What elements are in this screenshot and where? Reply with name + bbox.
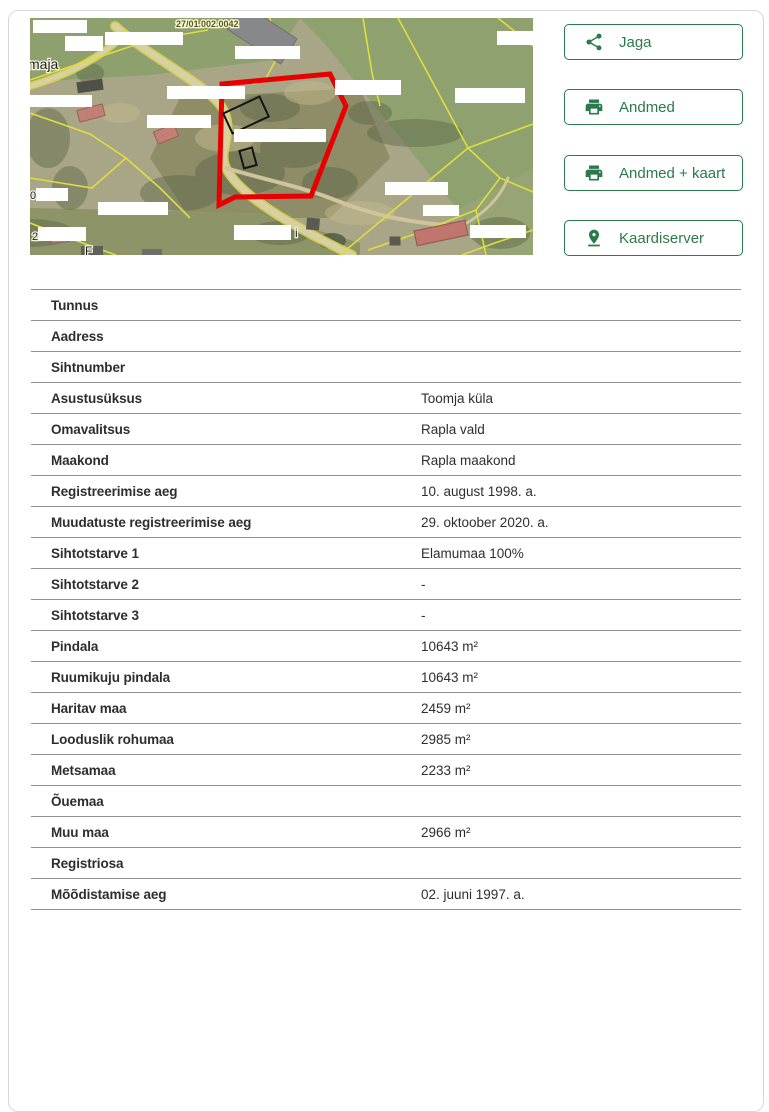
row-value: 10643 m² bbox=[421, 639, 478, 654]
table-row: Haritav maa2459 m² bbox=[31, 692, 741, 723]
row-label: Õuemaa bbox=[51, 794, 421, 809]
table-row: Õuemaa bbox=[31, 785, 741, 816]
row-label: Asustusüksus bbox=[51, 391, 421, 406]
map-glyph-2: 2 bbox=[32, 231, 38, 243]
print-data-button-label: Andmed bbox=[619, 99, 675, 116]
row-label: Pindala bbox=[51, 639, 421, 654]
table-row: Sihtotstarve 3- bbox=[31, 599, 741, 630]
row-label: Maakond bbox=[51, 453, 421, 468]
printer-icon bbox=[584, 163, 604, 183]
map-server-button[interactable]: Kaardiserver bbox=[564, 220, 743, 256]
table-row: Sihtnumber bbox=[31, 351, 741, 382]
map-label-cadastral-code: 27/01.002.0042 bbox=[176, 19, 239, 29]
table-row: Pindala10643 m² bbox=[31, 630, 741, 661]
print-data-button[interactable]: Andmed bbox=[564, 89, 743, 125]
map-label-partial: maja bbox=[30, 56, 59, 72]
map-glyph-4: i bbox=[295, 226, 298, 240]
table-row: Mõõdistamise aeg02. juuni 1997. a. bbox=[31, 878, 741, 910]
table-row: Muudatuste registreerimise aeg29. oktoob… bbox=[31, 506, 741, 537]
pin-drop-icon bbox=[584, 228, 604, 248]
table-row: Sihtotstarve 1Elamumaa 100% bbox=[31, 537, 741, 568]
row-value: 02. juuni 1997. a. bbox=[421, 887, 525, 902]
row-value: 2966 m² bbox=[421, 825, 471, 840]
table-row: Registriosa bbox=[31, 847, 741, 878]
row-label: Sihtotstarve 3 bbox=[51, 608, 421, 623]
map-glyph-3: F bbox=[85, 244, 92, 255]
row-label: Sihtnumber bbox=[51, 360, 421, 375]
table-row: Looduslik rohumaa2985 m² bbox=[31, 723, 741, 754]
row-label: Muu maa bbox=[51, 825, 421, 840]
table-row: Tunnus bbox=[31, 289, 741, 320]
row-value: Toomja küla bbox=[421, 391, 493, 406]
map-server-button-label: Kaardiserver bbox=[619, 230, 704, 247]
row-label: Muudatuste registreerimise aeg bbox=[51, 515, 421, 530]
row-label: Sihtotstarve 1 bbox=[51, 546, 421, 561]
row-label: Haritav maa bbox=[51, 701, 421, 716]
share-button-label: Jaga bbox=[619, 34, 652, 51]
share-button[interactable]: Jaga bbox=[564, 24, 743, 60]
printer-icon bbox=[584, 97, 604, 117]
row-label: Ruumikuju pindala bbox=[51, 670, 421, 685]
row-value: 2459 m² bbox=[421, 701, 471, 716]
print-data-map-button[interactable]: Andmed + kaart bbox=[564, 155, 743, 191]
table-row: Sihtotstarve 2- bbox=[31, 568, 741, 599]
cadastral-map[interactable]: 27/01.002.0042 maja 0 2 F i bbox=[30, 18, 533, 255]
share-icon bbox=[584, 32, 604, 52]
table-row: MaakondRapla maakond bbox=[31, 444, 741, 475]
table-row: Aadress bbox=[31, 320, 741, 351]
detail-card: 27/01.002.0042 maja 0 2 F i Jaga Andmed … bbox=[8, 10, 764, 1112]
row-label: Tunnus bbox=[51, 298, 421, 313]
map-glyph-1: 0 bbox=[30, 190, 36, 202]
row-label: Mõõdistamise aeg bbox=[51, 887, 421, 902]
table-row: Registreerimise aeg10. august 1998. a. bbox=[31, 475, 741, 506]
row-value: 2233 m² bbox=[421, 763, 471, 778]
row-label: Registriosa bbox=[51, 856, 421, 871]
print-data-map-button-label: Andmed + kaart bbox=[619, 165, 725, 182]
table-row: Metsamaa2233 m² bbox=[31, 754, 741, 785]
row-label: Metsamaa bbox=[51, 763, 421, 778]
table-row: AsustusüksusToomja küla bbox=[31, 382, 741, 413]
attribute-table: Tunnus Aadress Sihtnumber AsustusüksusTo… bbox=[31, 289, 741, 910]
row-value: Rapla maakond bbox=[421, 453, 516, 468]
row-value: 10643 m² bbox=[421, 670, 478, 685]
table-row: OmavalitsusRapla vald bbox=[31, 413, 741, 444]
row-value: 2985 m² bbox=[421, 732, 471, 747]
row-value: Elamumaa 100% bbox=[421, 546, 524, 561]
row-label: Registreerimise aeg bbox=[51, 484, 421, 499]
row-label: Looduslik rohumaa bbox=[51, 732, 421, 747]
row-label: Aadress bbox=[51, 329, 421, 344]
row-value: - bbox=[421, 577, 426, 592]
row-label: Omavalitsus bbox=[51, 422, 421, 437]
table-row: Ruumikuju pindala10643 m² bbox=[31, 661, 741, 692]
row-value: Rapla vald bbox=[421, 422, 485, 437]
row-value: 29. oktoober 2020. a. bbox=[421, 515, 549, 530]
row-label: Sihtotstarve 2 bbox=[51, 577, 421, 592]
row-value: - bbox=[421, 608, 426, 623]
row-value: 10. august 1998. a. bbox=[421, 484, 537, 499]
table-row: Muu maa2966 m² bbox=[31, 816, 741, 847]
